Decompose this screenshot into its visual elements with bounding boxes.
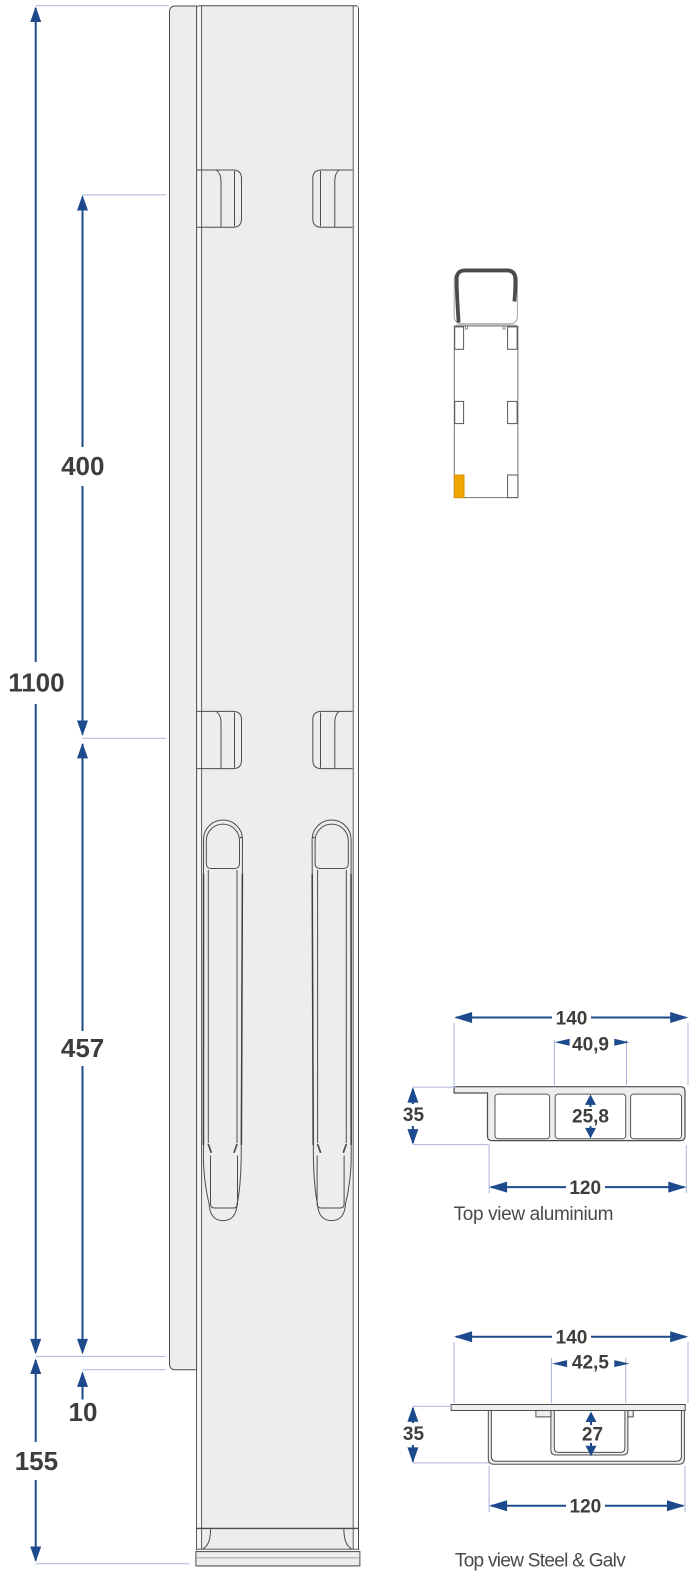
svg-text:35: 35 xyxy=(403,1424,425,1445)
svg-text:1100: 1100 xyxy=(8,667,64,697)
svg-text:140: 140 xyxy=(556,1328,588,1349)
svg-text:42,5: 42,5 xyxy=(572,1353,609,1374)
svg-text:400: 400 xyxy=(61,451,104,481)
svg-text:25,8: 25,8 xyxy=(572,1106,609,1127)
svg-text:120: 120 xyxy=(569,1178,601,1199)
svg-text:40,9: 40,9 xyxy=(572,1035,609,1056)
svg-text:27: 27 xyxy=(582,1424,603,1445)
svg-text:120: 120 xyxy=(570,1496,602,1517)
svg-text:Top view Steel & Galv: Top view Steel & Galv xyxy=(455,1550,626,1571)
svg-text:35: 35 xyxy=(403,1105,425,1126)
svg-text:Top view aluminium: Top view aluminium xyxy=(454,1204,613,1225)
svg-text:457: 457 xyxy=(61,1033,104,1063)
svg-text:10: 10 xyxy=(69,1397,98,1427)
svg-text:140: 140 xyxy=(556,1008,588,1029)
svg-text:155: 155 xyxy=(15,1446,58,1476)
